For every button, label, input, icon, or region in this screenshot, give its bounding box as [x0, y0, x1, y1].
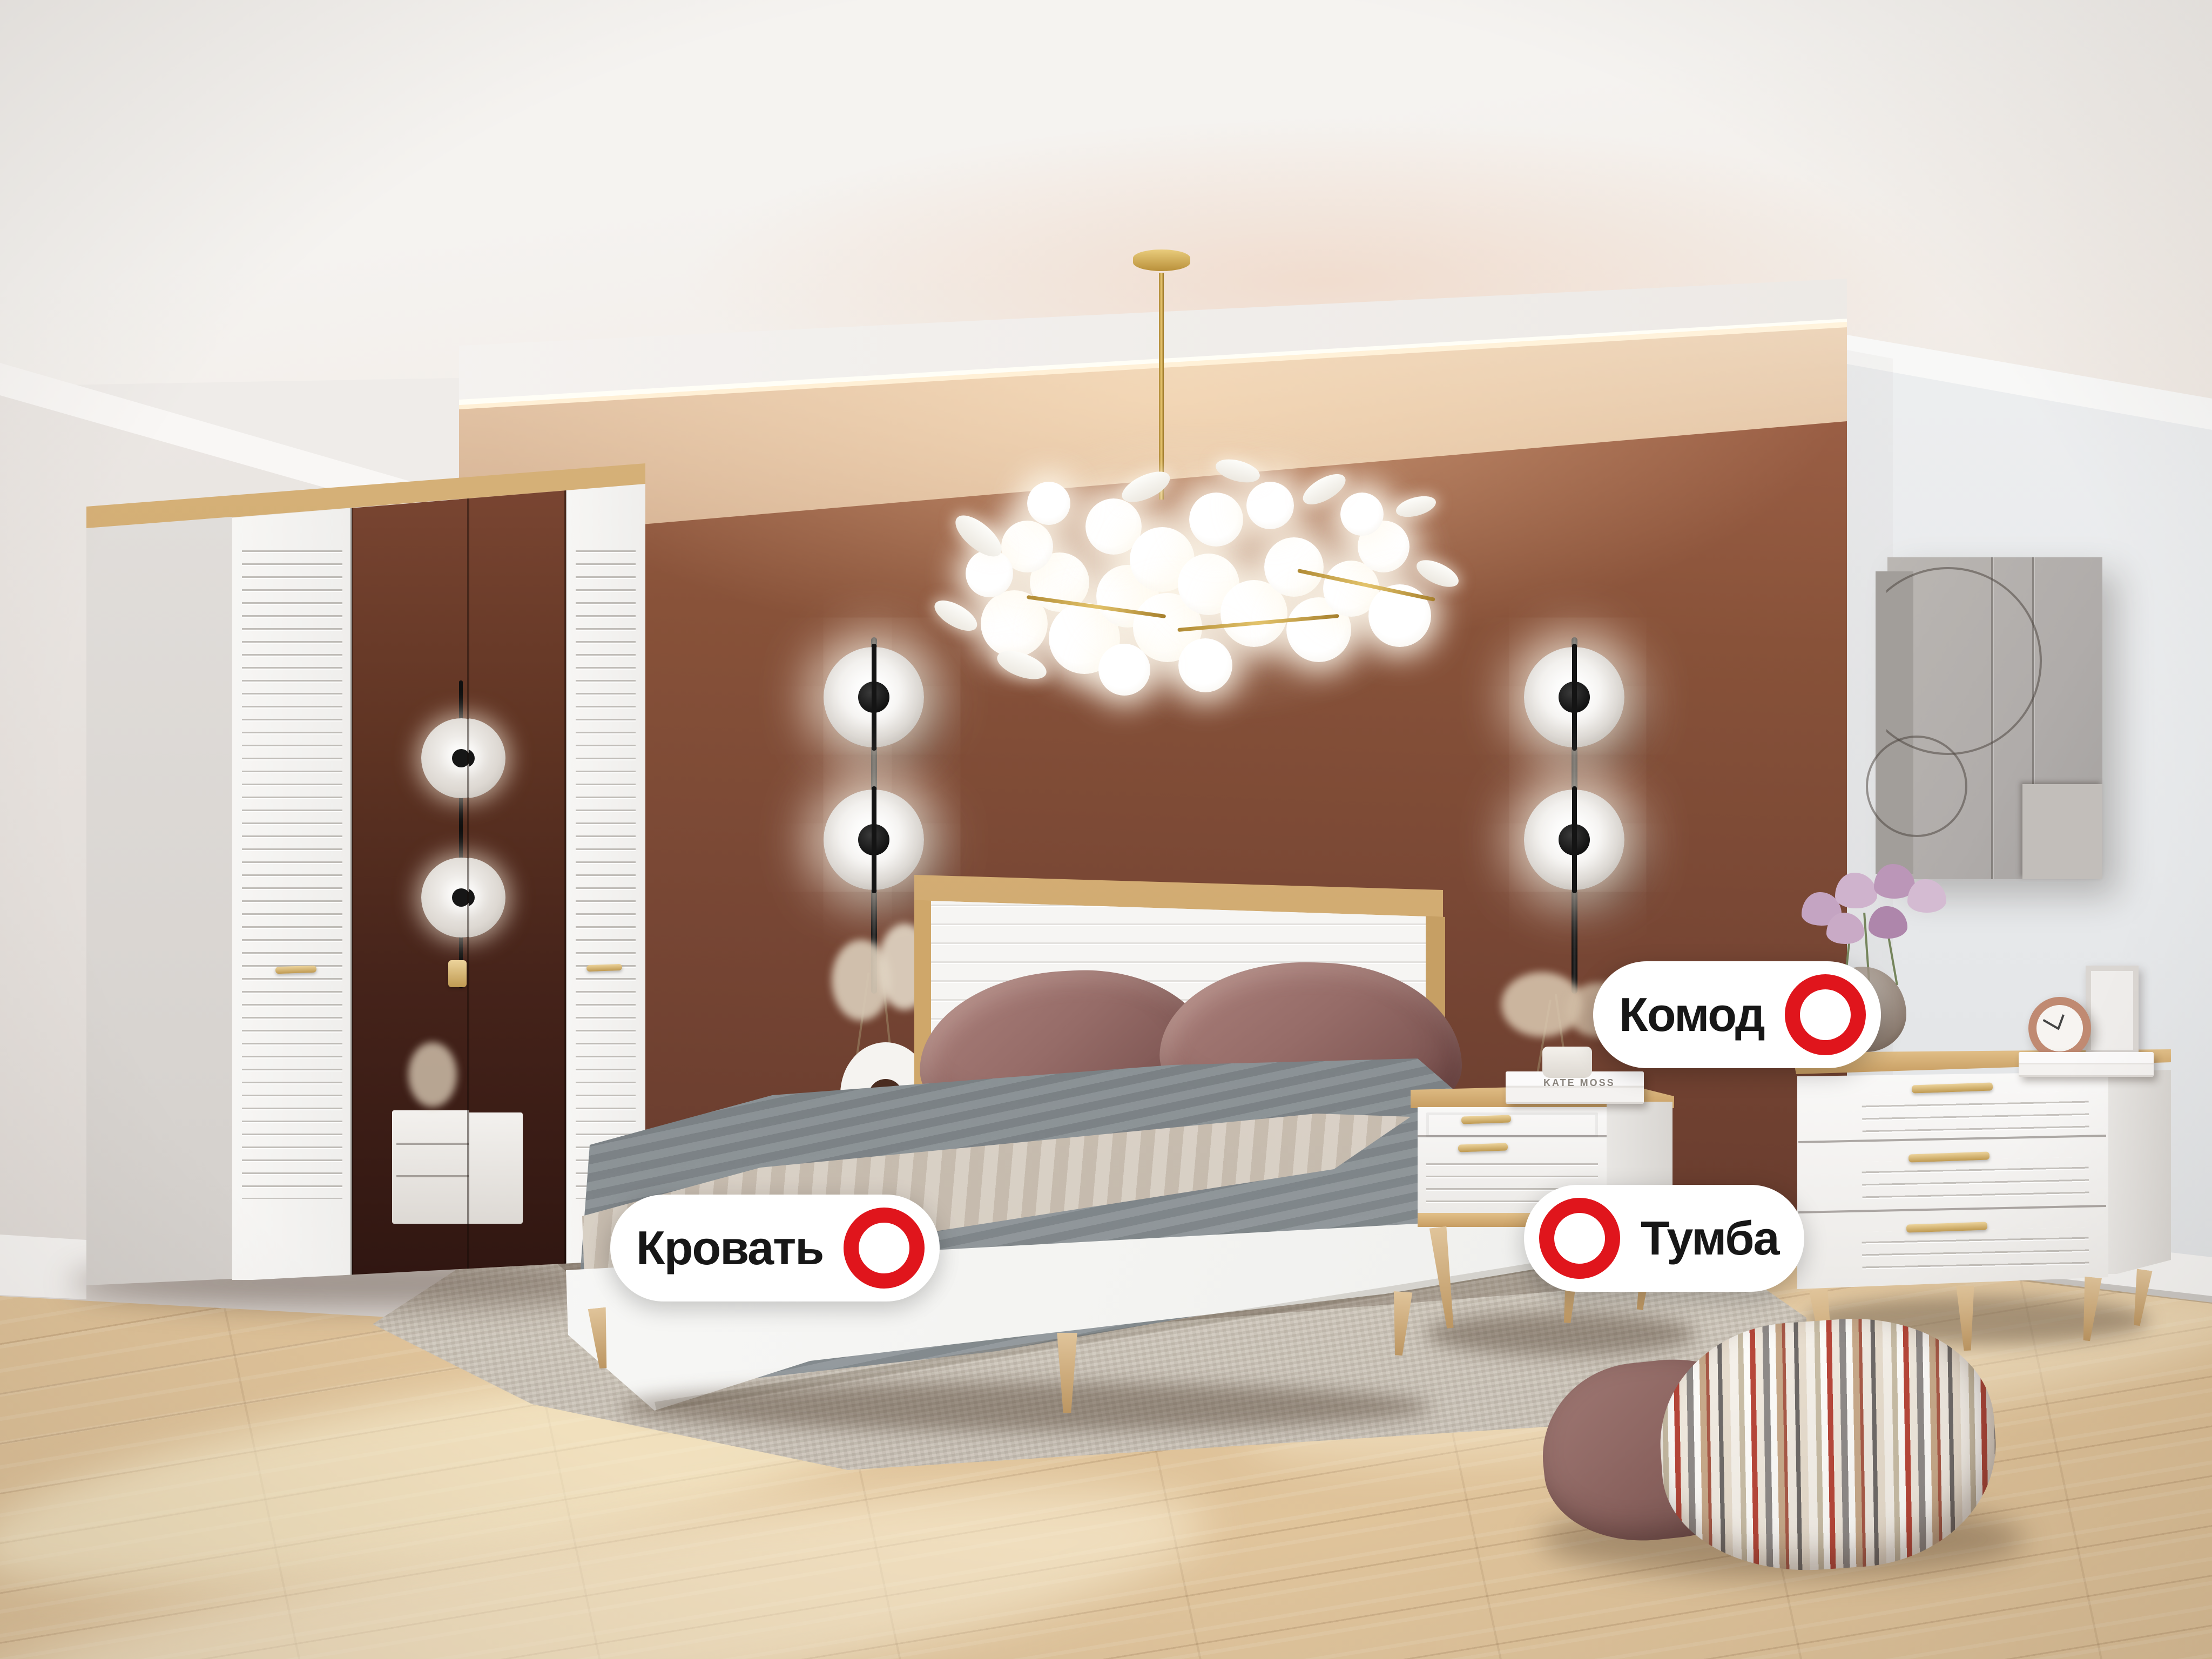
hotspot-dresser-label: Комод: [1619, 991, 1764, 1038]
hotspot-dresser[interactable]: Комод: [1593, 961, 1881, 1068]
hotspot-bed[interactable]: Кровать: [610, 1195, 940, 1301]
vignette: [0, 0, 2212, 1659]
hotspot-marker-icon[interactable]: [844, 1208, 925, 1289]
hotspot-marker-icon[interactable]: [1785, 974, 1866, 1055]
hotspot-nightstand-label: Тумба: [1641, 1215, 1778, 1262]
hotspot-nightstand[interactable]: Тумба: [1524, 1185, 1804, 1292]
hotspot-marker-icon[interactable]: [1539, 1198, 1620, 1279]
bedroom-showcase-scene: KATE MOSS Кровать: [0, 0, 2212, 1659]
hotspot-bed-label: Кровать: [636, 1224, 823, 1272]
